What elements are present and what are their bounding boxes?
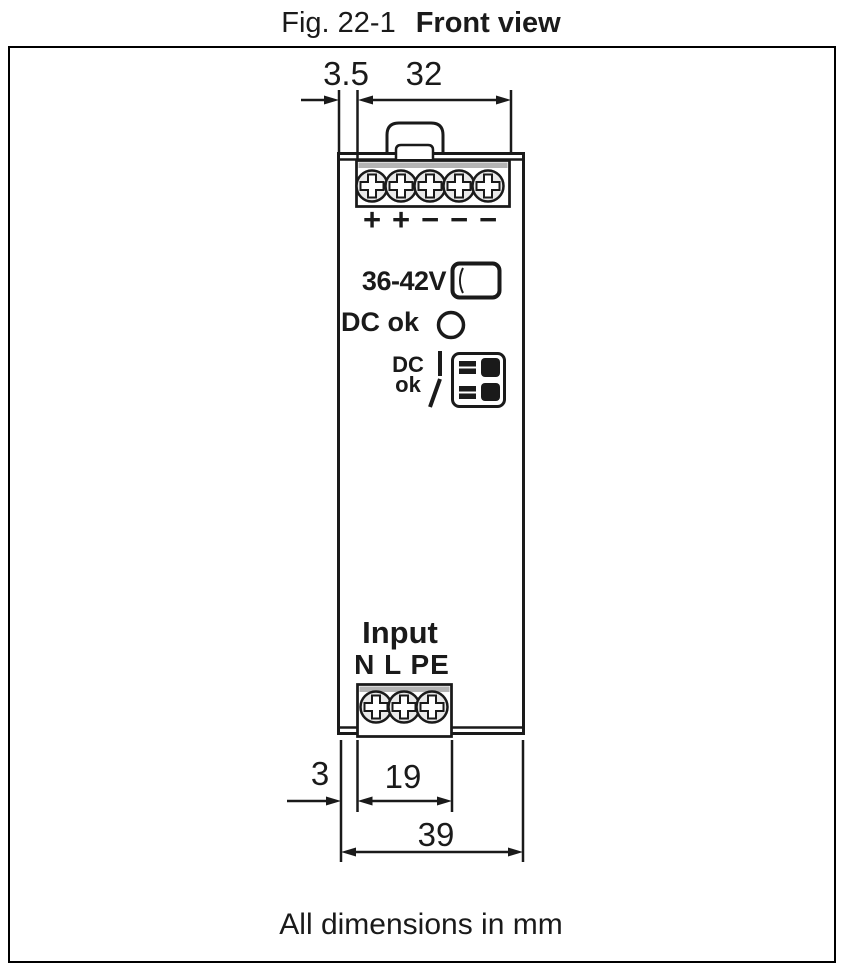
potentiometer-icon (453, 264, 500, 298)
polarity-minus: − (443, 203, 475, 237)
screw-icon (444, 171, 475, 202)
polarity-plus: + (356, 203, 388, 237)
dimension-overall-width: 39 (406, 818, 466, 852)
dimension-top-width: 32 (394, 57, 454, 91)
screw-icon (417, 692, 448, 723)
dc-ok-led-icon (439, 313, 464, 338)
input-label: Input (355, 615, 445, 651)
screw-icon (473, 171, 504, 202)
voltage-range-label: 36-42V (358, 266, 446, 297)
dc-ok-relay-label: DC ok (389, 355, 427, 395)
page: Fig. 22-1 Front view (0, 0, 842, 971)
polarity-minus: − (414, 203, 446, 237)
bottom-terminal-block (358, 685, 452, 737)
dimension-bottom-terminal-width: 19 (373, 760, 433, 794)
input-terminal-labels: N L PE (352, 649, 452, 681)
screw-icon (361, 692, 392, 723)
screw-icon (357, 171, 388, 202)
screw-icon (415, 171, 446, 202)
dc-ok-led-label: DC ok (341, 307, 433, 338)
screw-icon (386, 171, 417, 202)
relay-terminal-icon (453, 354, 505, 407)
top-terminal-block (357, 161, 510, 207)
screw-icon (389, 692, 420, 723)
polarity-minus: − (472, 203, 504, 237)
dimension-bottom-offset: 3 (300, 757, 340, 791)
dimensions-note: All dimensions in mm (0, 908, 842, 942)
polarity-plus: + (385, 203, 417, 237)
dimension-top-offset: 3.5 (316, 57, 376, 91)
